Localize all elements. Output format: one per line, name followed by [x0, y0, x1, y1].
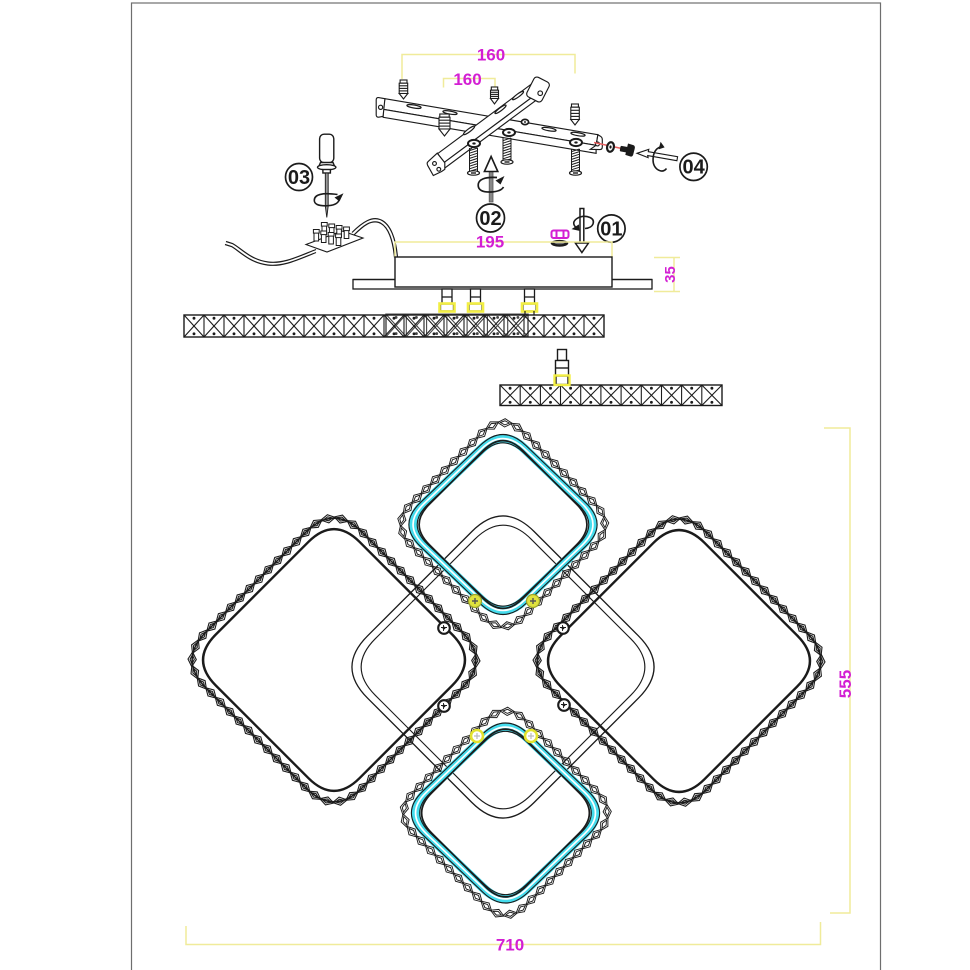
svg-text:160: 160 [453, 70, 481, 89]
svg-text:03: 03 [288, 167, 310, 189]
svg-text:555: 555 [836, 670, 855, 698]
svg-text:02: 02 [479, 208, 501, 230]
svg-text:01: 01 [600, 218, 622, 240]
svg-text:160: 160 [477, 46, 505, 65]
svg-text:195: 195 [476, 233, 504, 252]
svg-text:04: 04 [682, 157, 705, 179]
svg-text:35: 35 [662, 266, 679, 283]
svg-text:710: 710 [496, 936, 524, 955]
